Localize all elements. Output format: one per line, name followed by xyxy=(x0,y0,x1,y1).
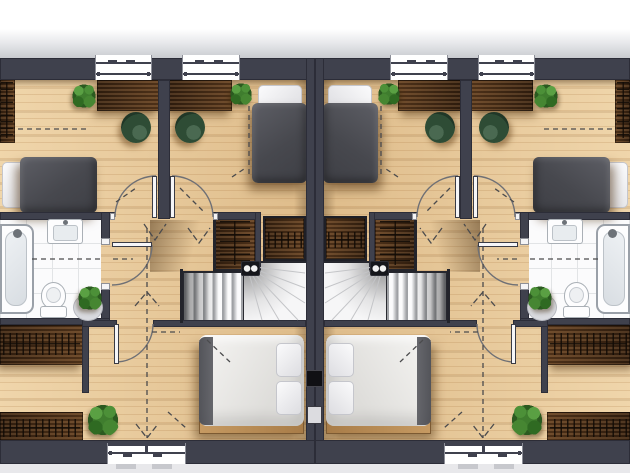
plan-annotations xyxy=(0,0,315,473)
door-leaf-bathroom xyxy=(478,242,518,247)
floor-plan-canvas xyxy=(0,0,630,473)
door-leaf-bedroom xyxy=(511,324,516,364)
unit-right xyxy=(315,0,630,473)
stair-spotlight-box xyxy=(370,261,389,276)
door-arc xyxy=(112,245,152,285)
unit-left xyxy=(0,0,315,473)
door-arc xyxy=(474,176,515,217)
ventilation-shaft xyxy=(307,406,322,424)
stair-spotlight-box xyxy=(241,261,260,276)
door-arc xyxy=(478,245,518,285)
door-leaf xyxy=(170,176,175,218)
door-leaf xyxy=(152,176,157,218)
door-leaf xyxy=(455,176,460,218)
direction-arrow xyxy=(188,228,210,243)
direction-arrow xyxy=(420,228,442,243)
door-leaf-bedroom xyxy=(114,324,119,364)
chimney-flue xyxy=(306,370,323,387)
door-arc xyxy=(115,176,156,217)
door-arc xyxy=(172,176,213,217)
plan-annotations xyxy=(315,0,630,473)
door-leaf xyxy=(473,176,478,218)
door-leaf-bathroom xyxy=(112,242,152,247)
door-arc xyxy=(417,176,458,217)
